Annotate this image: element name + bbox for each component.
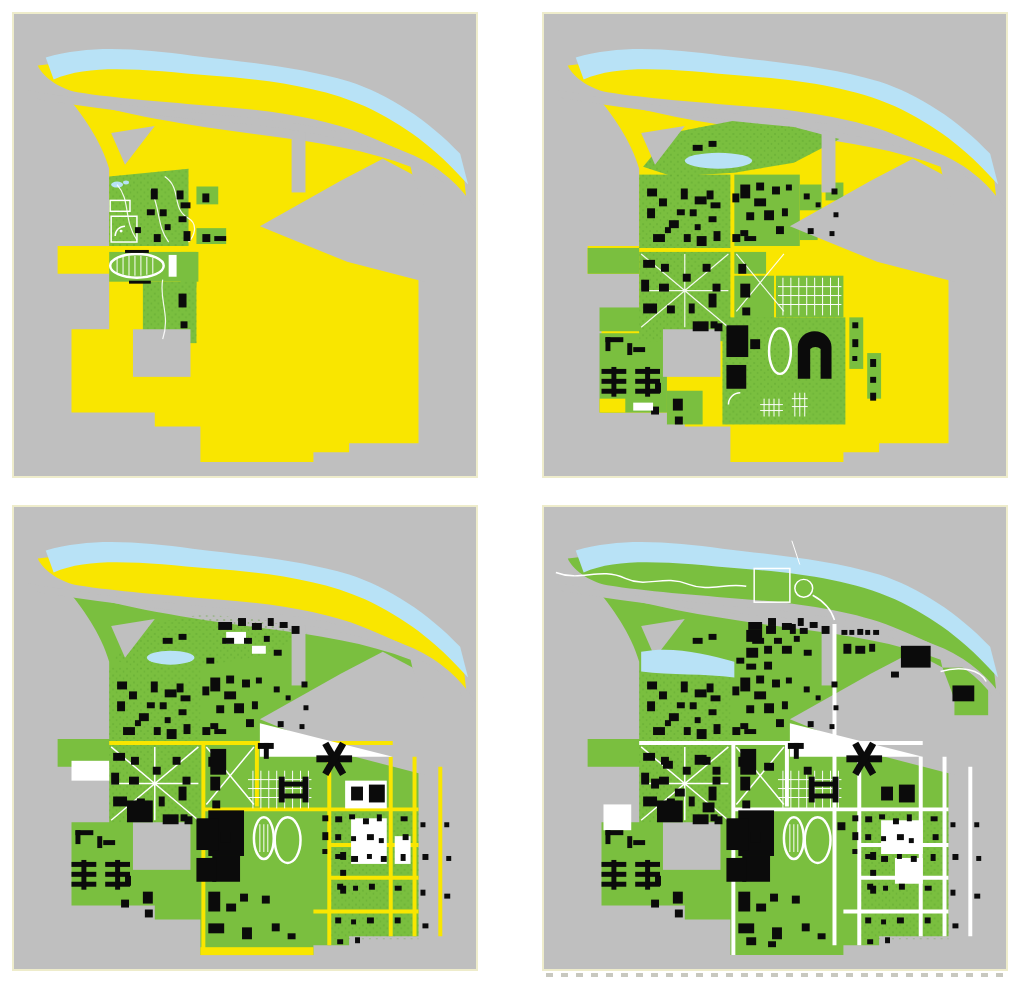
map-stage-1-canvas — [14, 14, 476, 476]
map-panel-stage-2 — [542, 12, 1008, 478]
campus-pond — [685, 153, 752, 169]
map-panel-stage-3 — [12, 505, 478, 971]
undeveloped-inholding — [600, 399, 626, 413]
map-stage-4-canvas — [544, 507, 1006, 969]
map-panel-stage-1 — [12, 12, 478, 478]
parking-lot — [895, 858, 923, 884]
west-lot — [603, 804, 631, 830]
map-stage-2-canvas — [544, 14, 1006, 476]
map-stage-3-canvas — [14, 507, 476, 969]
map-panel-stage-4 — [542, 505, 1008, 971]
white-building — [633, 403, 653, 411]
west-lot — [72, 761, 110, 781]
campus-pond — [147, 651, 195, 665]
cropped-print-artifact — [546, 973, 1006, 977]
